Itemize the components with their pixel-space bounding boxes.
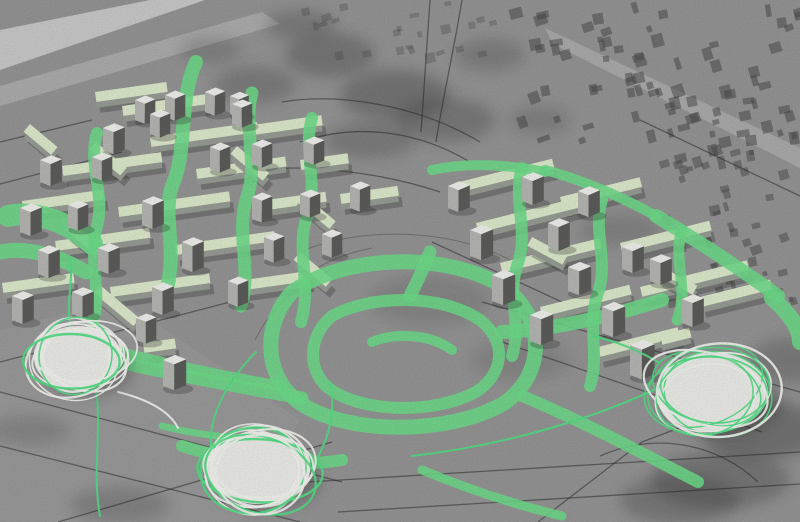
model-scene-svg bbox=[0, 0, 800, 522]
grain-noise bbox=[0, 0, 800, 522]
architectural-model-photo bbox=[0, 0, 800, 522]
photo-grain-overlay bbox=[0, 0, 800, 522]
